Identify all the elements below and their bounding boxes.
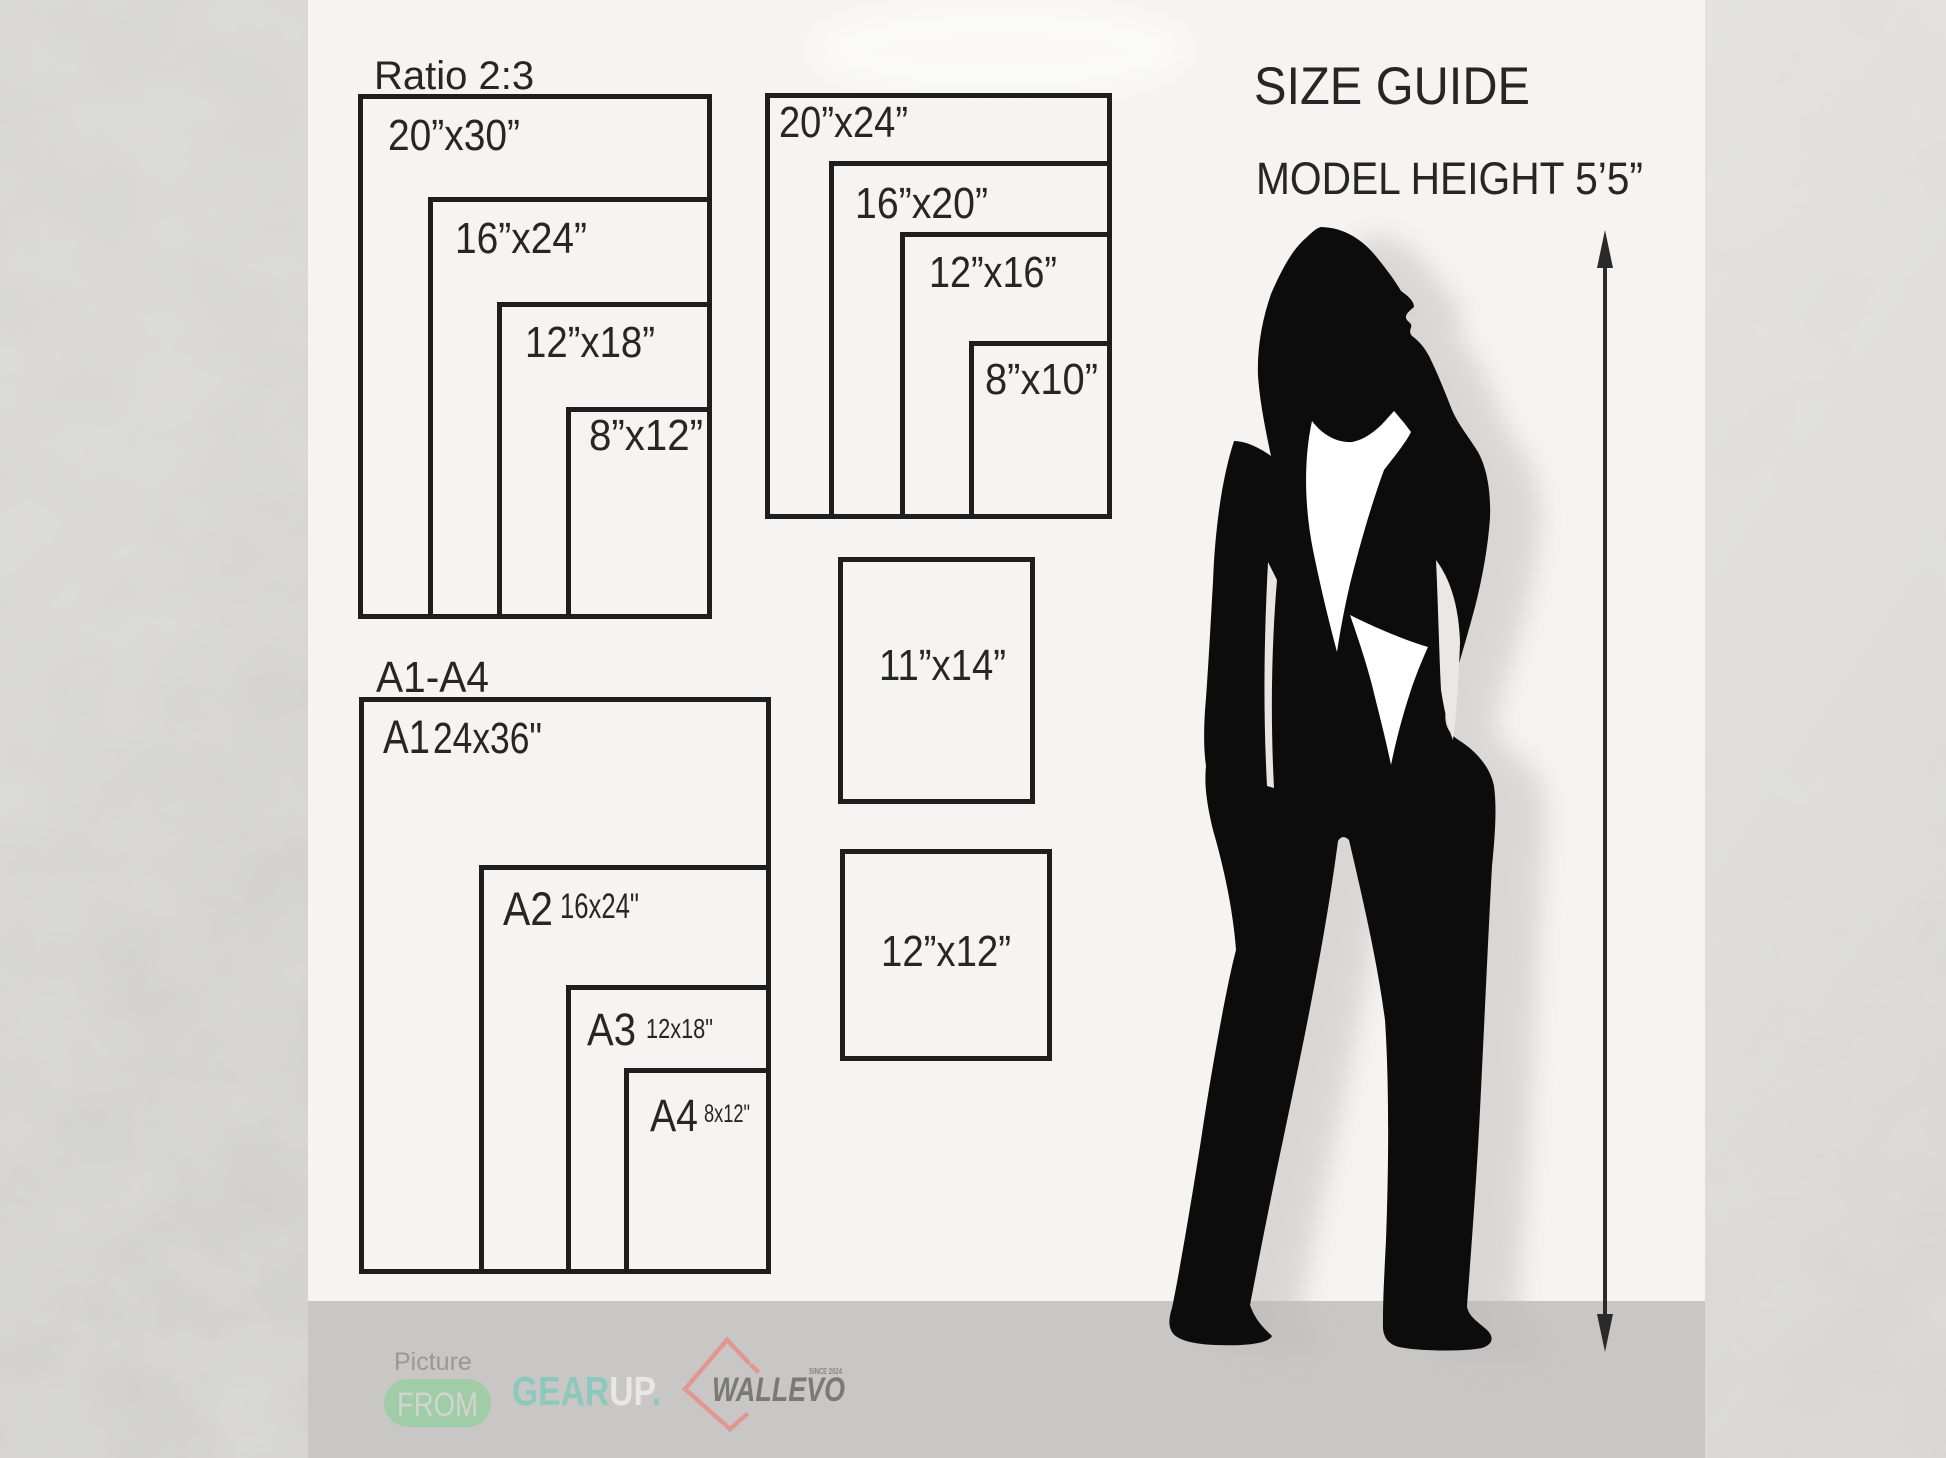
svg-text:20”x24”: 20”x24” xyxy=(779,98,908,147)
svg-text:12”x12”: 12”x12” xyxy=(881,927,1011,976)
svg-text:SIZE GUIDE: SIZE GUIDE xyxy=(1254,57,1530,116)
svg-text:WALLEVO: WALLEVO xyxy=(712,1371,845,1409)
svg-text:16”x24”: 16”x24” xyxy=(455,214,587,263)
svg-text:A2: A2 xyxy=(503,882,553,935)
svg-text:A4: A4 xyxy=(650,1090,698,1141)
svg-text:12”x18”: 12”x18” xyxy=(525,318,655,367)
svg-text:GEARUP.: GEARUP. xyxy=(512,1368,661,1414)
svg-text:8”x10”: 8”x10” xyxy=(985,355,1098,404)
svg-text:12”x16”: 12”x16” xyxy=(929,248,1057,297)
svg-text:MODEL HEIGHT 5’5”: MODEL HEIGHT 5’5” xyxy=(1256,153,1643,204)
svg-text:FROM: FROM xyxy=(397,1386,478,1424)
svg-text:A1: A1 xyxy=(383,710,430,763)
svg-text:20”x30”: 20”x30” xyxy=(388,111,520,160)
svg-text:8x12": 8x12" xyxy=(704,1100,750,1128)
svg-text:24x36": 24x36" xyxy=(433,714,542,763)
svg-text:12x18": 12x18" xyxy=(646,1013,713,1044)
svg-text:A1-A4: A1-A4 xyxy=(376,653,489,702)
svg-text:Picture: Picture xyxy=(394,1348,472,1376)
svg-text:16x24": 16x24" xyxy=(560,887,639,926)
svg-text:11”x14”: 11”x14” xyxy=(879,641,1006,690)
svg-text:A3: A3 xyxy=(587,1004,636,1055)
svg-text:Ratio 2:3: Ratio 2:3 xyxy=(374,54,534,98)
svg-text:16”x20”: 16”x20” xyxy=(855,179,988,228)
svg-text:8”x12”: 8”x12” xyxy=(589,411,703,460)
